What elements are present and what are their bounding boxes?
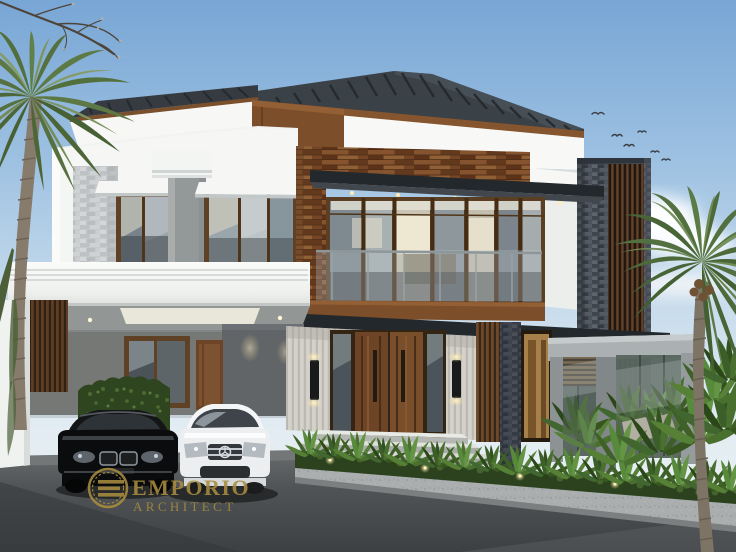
svg-text:EMPORIO: EMPORIO [132,475,250,500]
svg-text:ARCHITECT: ARCHITECT [133,499,237,514]
